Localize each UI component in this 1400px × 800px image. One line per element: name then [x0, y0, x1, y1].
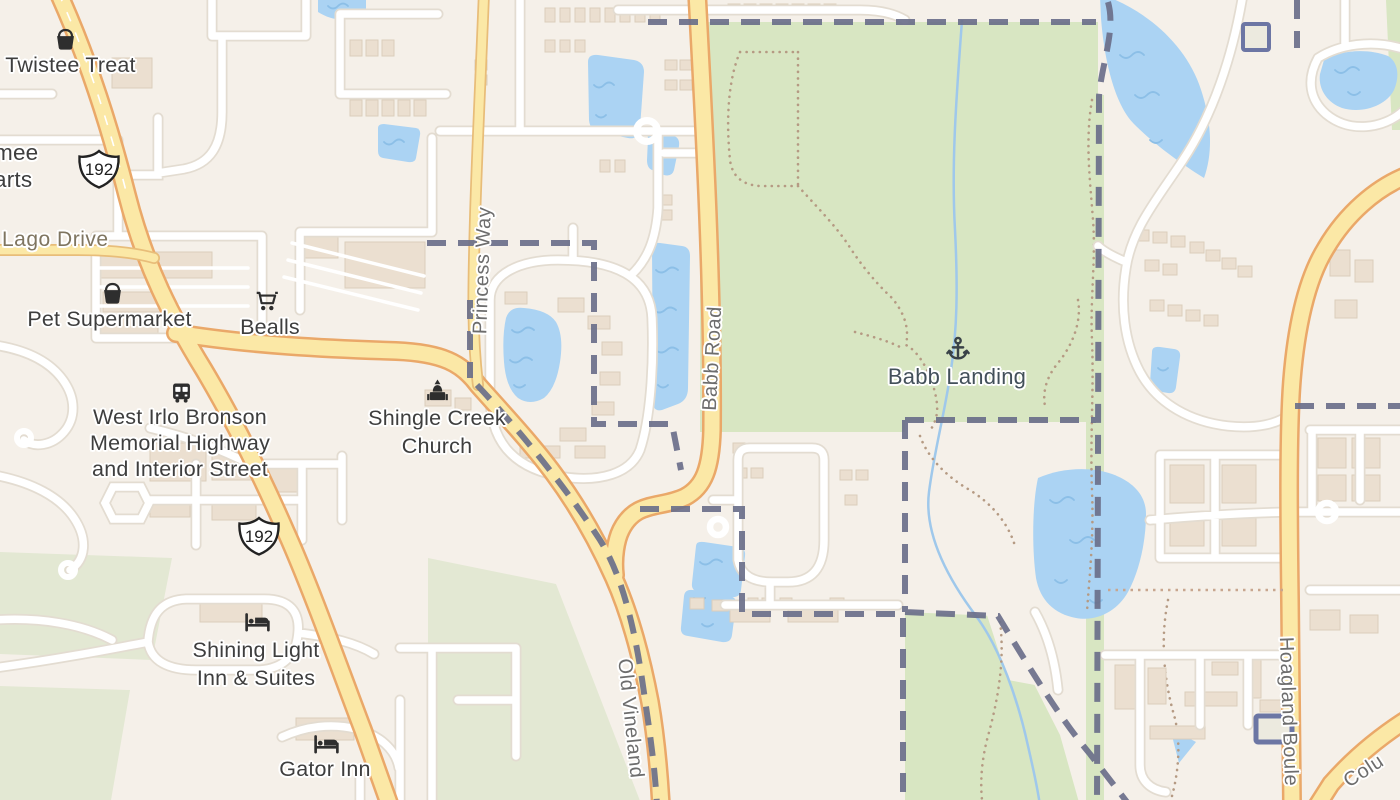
poi-label-shingle-creek-church[interactable]: Shingle Creek Church: [352, 404, 522, 460]
poi-label-twistee-treat[interactable]: Twistee Treat: [0, 52, 153, 78]
bed-icon[interactable]: [312, 728, 341, 757]
poi-label-pet-supermarket[interactable]: Pet Supermarket: [12, 306, 207, 332]
poi-label-bealls[interactable]: Bealls: [228, 314, 312, 340]
svg-text:192: 192: [245, 527, 273, 546]
poi-label-gator-inn[interactable]: Gator Inn: [258, 756, 392, 782]
map-canvas[interactable]: Twistee Treat mee arts Pet Supermarket B…: [0, 0, 1400, 800]
anchor-icon[interactable]: [944, 335, 972, 363]
svg-text:192: 192: [85, 160, 113, 179]
bed-icon[interactable]: [243, 606, 272, 635]
poi-label-babb-landing[interactable]: Babb Landing: [868, 364, 1046, 390]
church-icon[interactable]: [424, 377, 451, 404]
us-route-192-shield: 192: [76, 148, 122, 190]
us-route-192-shield: 192: [236, 515, 282, 557]
bus-icon[interactable]: [168, 379, 195, 406]
road-label-lago-drive: Lago Drive: [2, 228, 109, 252]
shopping-basket-icon[interactable]: [52, 26, 79, 53]
shopping-cart-icon[interactable]: [254, 288, 280, 314]
shopping-basket-icon[interactable]: [99, 280, 126, 307]
poi-label-west-irlo-bronson[interactable]: West Irlo Bronson Memorial Highway and I…: [72, 404, 288, 482]
poi-label-shining-light-inn[interactable]: Shining Light Inn & Suites: [170, 636, 342, 692]
poi-label-kissimmee-partial[interactable]: mee arts: [0, 139, 54, 193]
